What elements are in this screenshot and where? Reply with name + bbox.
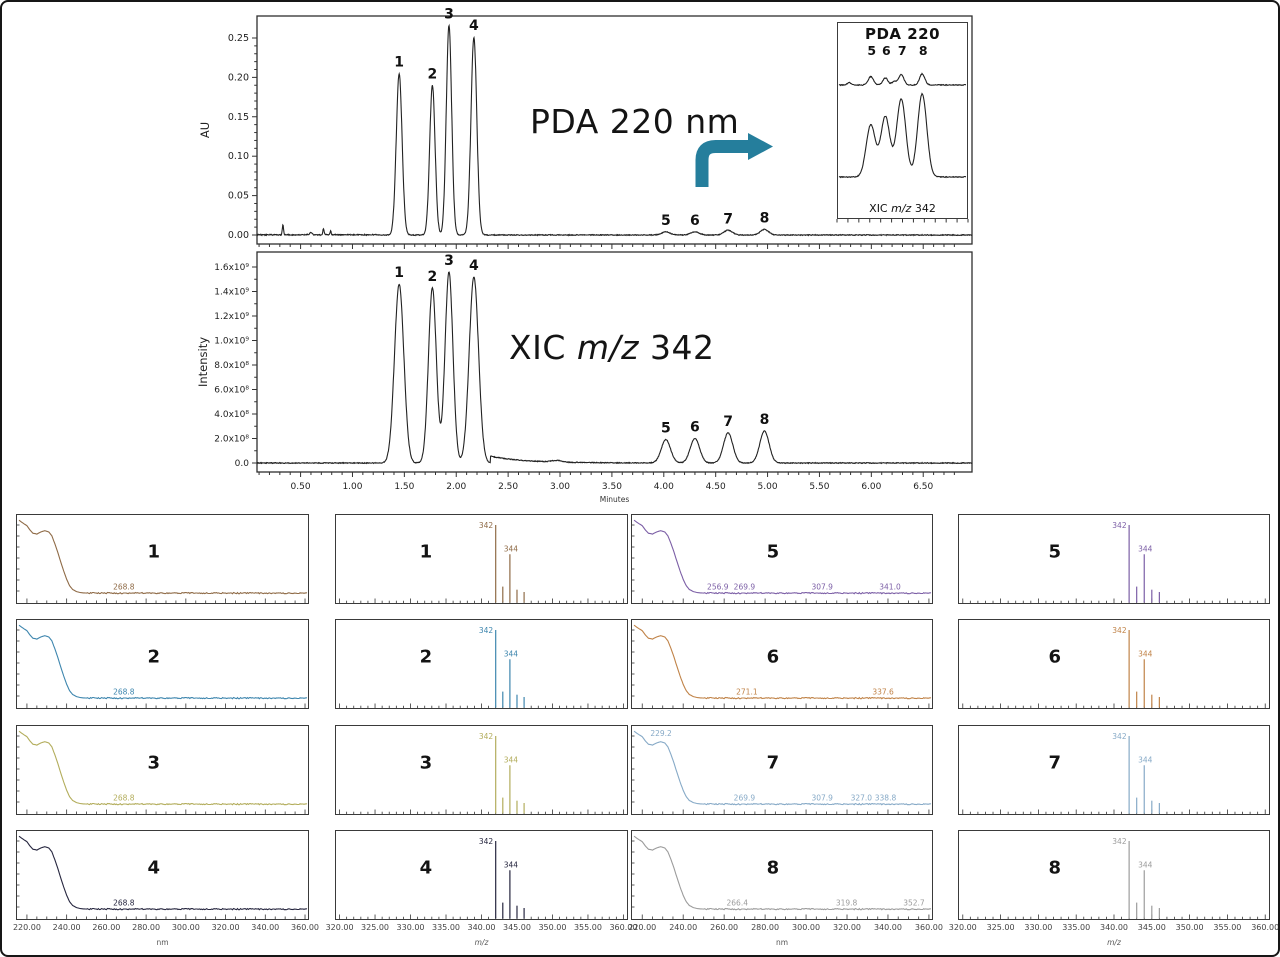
axis-tick-label: 240.00 [669,923,697,932]
ms-spectrum-plot-1: 342344 [335,514,628,604]
inset-caption: XIC m/z 342 [838,202,967,215]
inset-pda-trace [839,74,966,86]
mz-annotation: 344 [1138,860,1153,869]
uv-spectrum-panel-2: 268.82 [16,619,309,709]
panel-number-label: 1 [420,541,433,562]
axis-tick-label: 340.00 [468,923,496,932]
panel-number-label: 2 [420,646,433,667]
ms-spectrum-panel-5: 3423445 [958,514,1270,604]
mz-annotation: 342 [1112,626,1127,635]
uv-trace-4 [19,836,307,910]
uv-spectrum-plot-6: 271.1337.6 [631,619,933,709]
arrow-shaft [702,147,748,188]
arrow-head [748,133,773,160]
xic-title-suffix: 342 [650,328,715,367]
uv-trace-2 [19,625,307,699]
ms-spectrum-panel-3: 3423443 [335,725,628,815]
axis-tick-label: 320.00 [326,923,354,932]
mz-annotation: 344 [1138,544,1153,553]
ms-spectrum-panel-2: 3423442 [335,619,628,709]
panel-number-label: 7 [1048,752,1061,773]
mz-annotation: 344 [504,649,519,658]
uv-trace-8 [634,836,931,910]
uv-spectrum-plot-8: 266.4319.8352.7 [631,830,933,920]
uv-trace-3 [19,731,307,805]
ms-spectrum-panel-8: 3423448 [958,830,1270,920]
wavelength-annotation: 268.8 [113,688,135,697]
uv-spectrum-panel-4: 268.84 [16,830,309,920]
axis-tick-label: 350.00 [538,923,566,932]
wavelength-annotation: 307.9 [811,583,833,592]
mz-annotation: 342 [1112,732,1127,741]
wavelength-annotation: 268.8 [113,794,135,803]
panel-number-label: 8 [767,857,780,878]
uv-spectrum-plot-7: 229.2269.9307.9327.0338.8 [631,725,933,815]
inset-peak-label-5: 5 [867,43,876,58]
inset-peak-labels: 5678 [838,43,967,59]
axis-title: m/z [1107,938,1122,947]
inset-title: PDA 220 [838,25,967,43]
uv-spectrum-panel-7: 229.2269.9307.9327.0338.87 [631,725,933,815]
axis-tick-label: 335.00 [432,923,460,932]
wavelength-annotation: 352.7 [903,899,925,908]
panel-number-label: 7 [767,752,780,773]
wavelength-annotation: 327.0 [851,794,873,803]
wavelength-annotation: 307.9 [811,794,833,803]
axis-tick-label: 220.00 [13,923,41,932]
axis-tick-label: 360.00 [291,923,319,932]
wavelength-annotation: 268.8 [113,583,135,592]
panel-number-label: 2 [147,646,160,667]
axis-tick-label: 325.00 [987,923,1015,932]
wavelength-annotation: 229.2 [650,729,672,738]
inset-arrow-icon [687,127,787,197]
ms-spectrum-plot-4: 342344 [335,830,628,920]
uv-trace-1 [19,520,307,594]
inset-zoom-panel: PDA 220 5678 XIC m/z 342 [837,22,968,219]
axis-tick-label: 280.00 [751,923,779,932]
axis-tick-label: 345.00 [1138,923,1166,932]
axis-title: nm [776,938,788,947]
ms-axis-strip: 320.00325.00330.00335.00340.00345.00350.… [958,920,1270,956]
xic-panel-title: XIC m/z 342 [509,328,714,367]
wavelength-annotation: 337.6 [872,688,894,697]
axis-tick-label: 220.00 [628,923,656,932]
wavelength-annotation: 269.9 [734,583,756,592]
uv-spectrum-plot-3: 268.8 [16,725,309,815]
panel-number-label: 5 [767,541,780,562]
axis-tick-label: 330.00 [397,923,425,932]
mz-annotation: 344 [504,860,519,869]
mz-annotation: 342 [479,837,494,846]
ms-spectrum-panel-7: 3423447 [958,725,1270,815]
axis-tick-label: 340.00 [251,923,279,932]
uv-spectrum-plot-4: 268.8 [16,830,309,920]
inset-xic-trace [839,94,966,178]
chromatography-figure: 0.000.050.100.150.200.25AU123456780.02.0… [0,0,1280,957]
uv-spectrum-panel-3: 268.83 [16,725,309,815]
axis-tick-label: 320.00 [212,923,240,932]
panel-number-label: 6 [1048,646,1061,667]
ms-spectrum-plot-2: 342344 [335,619,628,709]
wavelength-annotation: 268.8 [113,899,135,908]
ms-spectrum-plot-7: 342344 [958,725,1270,815]
uv-spectrum-plot-5: 256.9269.9307.9341.0 [631,514,933,604]
axis-tick-label: 355.00 [574,923,602,932]
wavelength-annotation: 266.4 [727,899,749,908]
ms-spectrum-plot-3: 342344 [335,725,628,815]
uv-spectrum-panel-6: 271.1337.66 [631,619,933,709]
xic-title-mz: m/z [577,328,639,367]
axis-tick-label: 280.00 [132,923,160,932]
wavelength-annotation: 338.8 [875,794,897,803]
ms-spectrum-plot-5: 342344 [958,514,1270,604]
inset-caption-mz: m/z [891,202,911,215]
ms-spectrum-plot-8: 342344 [958,830,1270,920]
panel-number-label: 3 [147,752,160,773]
ms-axis-strip: 320.00325.00330.00335.00340.00345.00350.… [335,920,628,956]
axis-tick-label: 325.00 [361,923,389,932]
panel-number-label: 8 [1048,857,1061,878]
wavelength-annotation: 269.9 [734,794,756,803]
panel-number-label: 5 [1048,541,1061,562]
inset-peak-label-7: 7 [898,43,907,58]
mz-annotation: 342 [479,521,494,530]
axis-tick-label: 320.00 [949,923,977,932]
axis-tick-label: 360.00 [915,923,943,932]
axis-tick-label: 300.00 [792,923,820,932]
axis-tick-label: 355.00 [1213,923,1241,932]
inset-peak-label-6: 6 [882,43,891,58]
mz-annotation: 344 [1138,649,1153,658]
wavelength-annotation: 271.1 [736,688,758,697]
wavelength-annotation: 341.0 [879,583,901,592]
ms-spectrum-panel-1: 3423441 [335,514,628,604]
spectra-grid: 268.81268.82268.83268.84220.00240.00260.… [2,2,1280,957]
axis-tick-label: 330.00 [1024,923,1052,932]
uv-spectrum-plot-2: 268.8 [16,619,309,709]
axis-tick-label: 360.00 [1251,923,1279,932]
ms-spectrum-panel-6: 3423446 [958,619,1270,709]
mz-annotation: 342 [479,626,494,635]
axis-tick-label: 350.00 [1176,923,1204,932]
mz-annotation: 342 [1112,837,1127,846]
inset-caption-suffix: 342 [915,202,936,215]
axis-tick-label: 260.00 [92,923,120,932]
uv-axis-strip: 220.00240.00260.00280.00300.00320.00340.… [16,920,309,956]
uv-spectrum-panel-5: 256.9269.9307.9341.05 [631,514,933,604]
axis-tick-label: 240.00 [53,923,81,932]
uv-axis-strip: 220.00240.00260.00280.00300.00320.00340.… [631,920,933,956]
axis-tick-label: 260.00 [710,923,738,932]
ms-spectrum-panel-4: 3423444 [335,830,628,920]
axis-title: m/z [475,938,490,947]
axis-tick-label: 335.00 [1062,923,1090,932]
wavelength-annotation: 256.9 [707,583,729,592]
axis-tick-label: 340.00 [1100,923,1128,932]
panel-number-label: 3 [420,752,433,773]
panel-number-label: 4 [420,857,433,878]
mz-annotation: 342 [1112,521,1127,530]
uv-spectrum-plot-1: 268.8 [16,514,309,604]
panel-number-label: 4 [147,857,160,878]
uv-spectrum-panel-1: 268.81 [16,514,309,604]
ms-spectrum-plot-6: 342344 [958,619,1270,709]
mz-annotation: 344 [504,544,519,553]
axis-tick-label: 340.00 [874,923,902,932]
inset-caption-prefix: XIC [869,202,887,215]
inset-traces-plot [839,59,966,199]
mz-annotation: 344 [1138,755,1153,764]
panel-number-label: 1 [147,541,160,562]
axis-title: nm [156,938,168,947]
inset-peak-label-8: 8 [919,43,928,58]
axis-tick-label: 300.00 [172,923,200,932]
mz-annotation: 344 [504,755,519,764]
axis-tick-label: 345.00 [503,923,531,932]
axis-tick-label: 320.00 [833,923,861,932]
uv-spectrum-panel-8: 266.4319.8352.78 [631,830,933,920]
xic-title-prefix: XIC [509,328,566,367]
panel-number-label: 6 [767,646,780,667]
mz-annotation: 342 [479,732,494,741]
wavelength-annotation: 319.8 [836,899,858,908]
